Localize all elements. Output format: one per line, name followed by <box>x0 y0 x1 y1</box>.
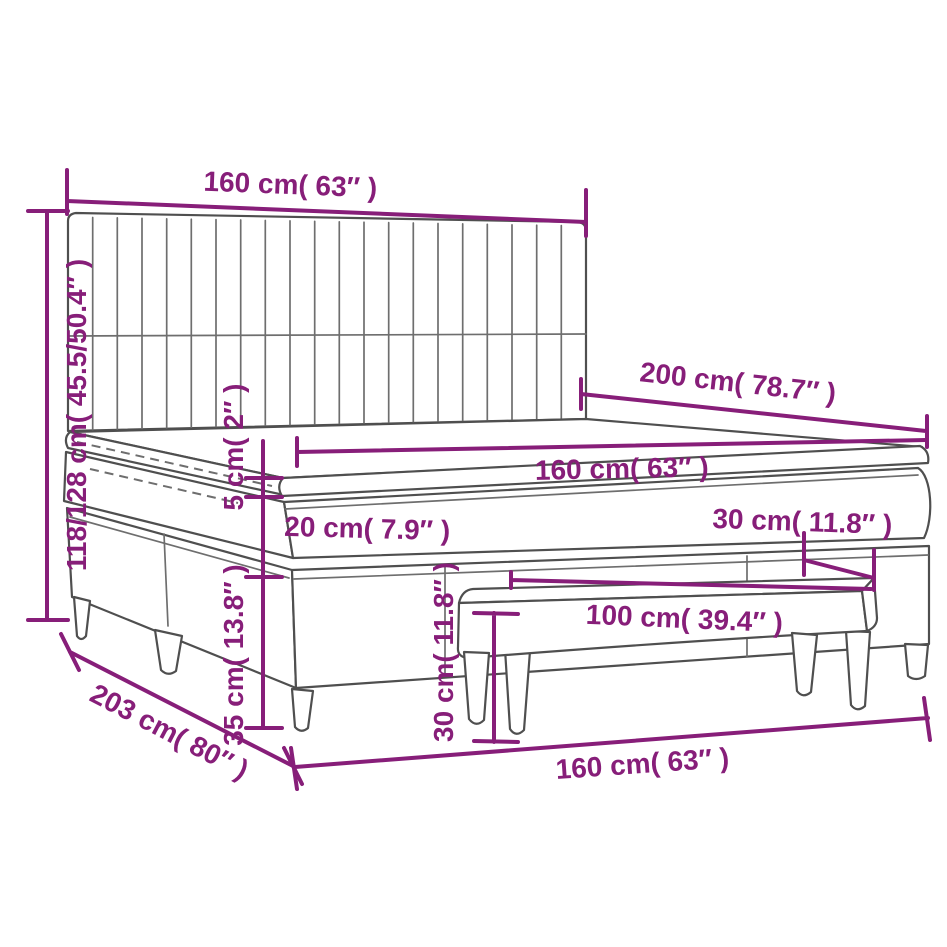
dim-label-bench-height: 30 cm( 11.8″ ) <box>428 562 459 742</box>
diagram-canvas: 160 cm( 63″ ) 118/128 cm( 45.5/50.4″ ) 2… <box>0 0 947 947</box>
bench-leg-back-left <box>505 649 530 734</box>
bed-leg-front-corner <box>292 689 313 731</box>
dim-label-bed-height: 118/128 cm( 45.5/50.4″ ) <box>61 259 92 571</box>
dim-label-topper-height: 5 cm( 2″ ) <box>218 383 249 510</box>
dim-label-bed-length: 200 cm( 78.7″ ) <box>638 356 837 408</box>
bed-leg-right <box>905 644 928 679</box>
bed-dimension-diagram: 160 cm( 63″ ) 118/128 cm( 45.5/50.4″ ) 2… <box>0 0 947 947</box>
bed-drawing <box>64 213 930 734</box>
bed-leg-front-left <box>74 597 90 639</box>
bench-leg-back-right <box>846 631 870 709</box>
headboard-outline <box>68 213 586 431</box>
dim-label-mattress-width: 160 cm( 63″ ) <box>535 451 709 486</box>
dim-label-base-width: 160 cm( 63″ ) <box>555 742 730 785</box>
dim-label-mattress-height: 20 cm( 7.9″ ) <box>284 511 451 546</box>
headboard <box>68 213 586 431</box>
bench-leg-front-left <box>464 652 489 724</box>
dim-label-base-height: 35 cm( 13.8″ ) <box>218 564 249 746</box>
dim-label-headboard-width: 160 cm( 63″ ) <box>203 166 378 204</box>
bench-leg-front-right <box>792 633 817 695</box>
dim-label-bench-depth: 30 cm( 11.8″ ) <box>712 503 893 540</box>
bed-leg-left <box>155 630 182 674</box>
